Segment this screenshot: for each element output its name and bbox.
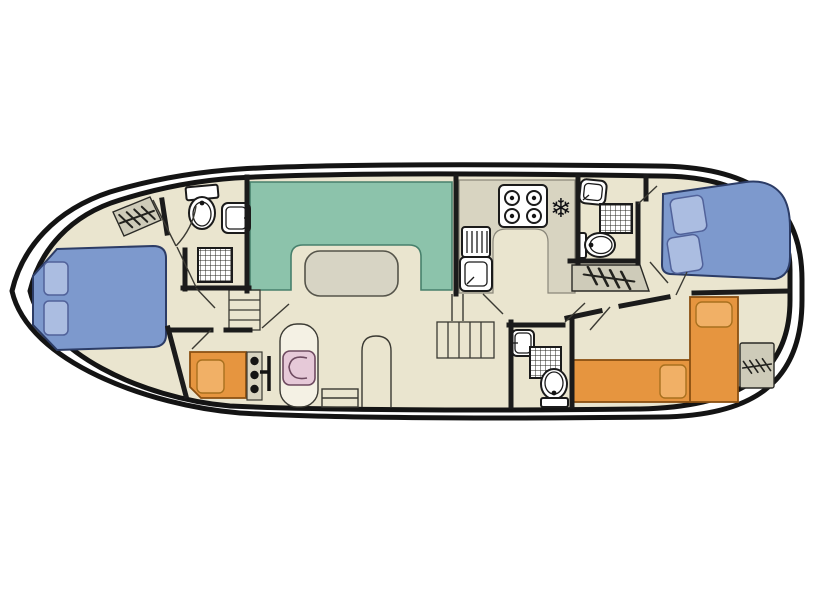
bathroom-sink	[579, 179, 607, 206]
saloon	[250, 182, 452, 296]
toilet-dot	[552, 391, 557, 396]
pillow	[666, 234, 703, 275]
burner-dot	[532, 214, 536, 218]
console-knob	[250, 357, 258, 365]
shower-grid	[600, 204, 632, 233]
console-knob	[250, 371, 258, 379]
shower-grid	[198, 248, 232, 282]
toilet-dot	[200, 201, 205, 206]
burner-dot	[510, 196, 514, 200]
pillow	[696, 302, 732, 327]
saloon-table	[305, 251, 398, 296]
pillow	[44, 301, 68, 335]
helm-chair	[283, 351, 315, 385]
pillow	[669, 195, 707, 236]
console-knob	[250, 385, 258, 393]
pillow	[44, 262, 68, 295]
pillow	[660, 365, 686, 398]
aft-double-cabin	[662, 182, 790, 279]
toilet-tank	[541, 398, 568, 407]
wall	[694, 291, 788, 293]
burner-dot	[510, 214, 514, 218]
boat-floor-plan: ❄	[0, 0, 815, 612]
bow-double-cabin	[33, 246, 166, 350]
burner-dot	[532, 196, 536, 200]
toilet-dot	[589, 243, 594, 248]
freezer-icon: ❄	[550, 194, 572, 224]
pillow	[197, 360, 224, 393]
sink-drainer	[462, 227, 490, 257]
